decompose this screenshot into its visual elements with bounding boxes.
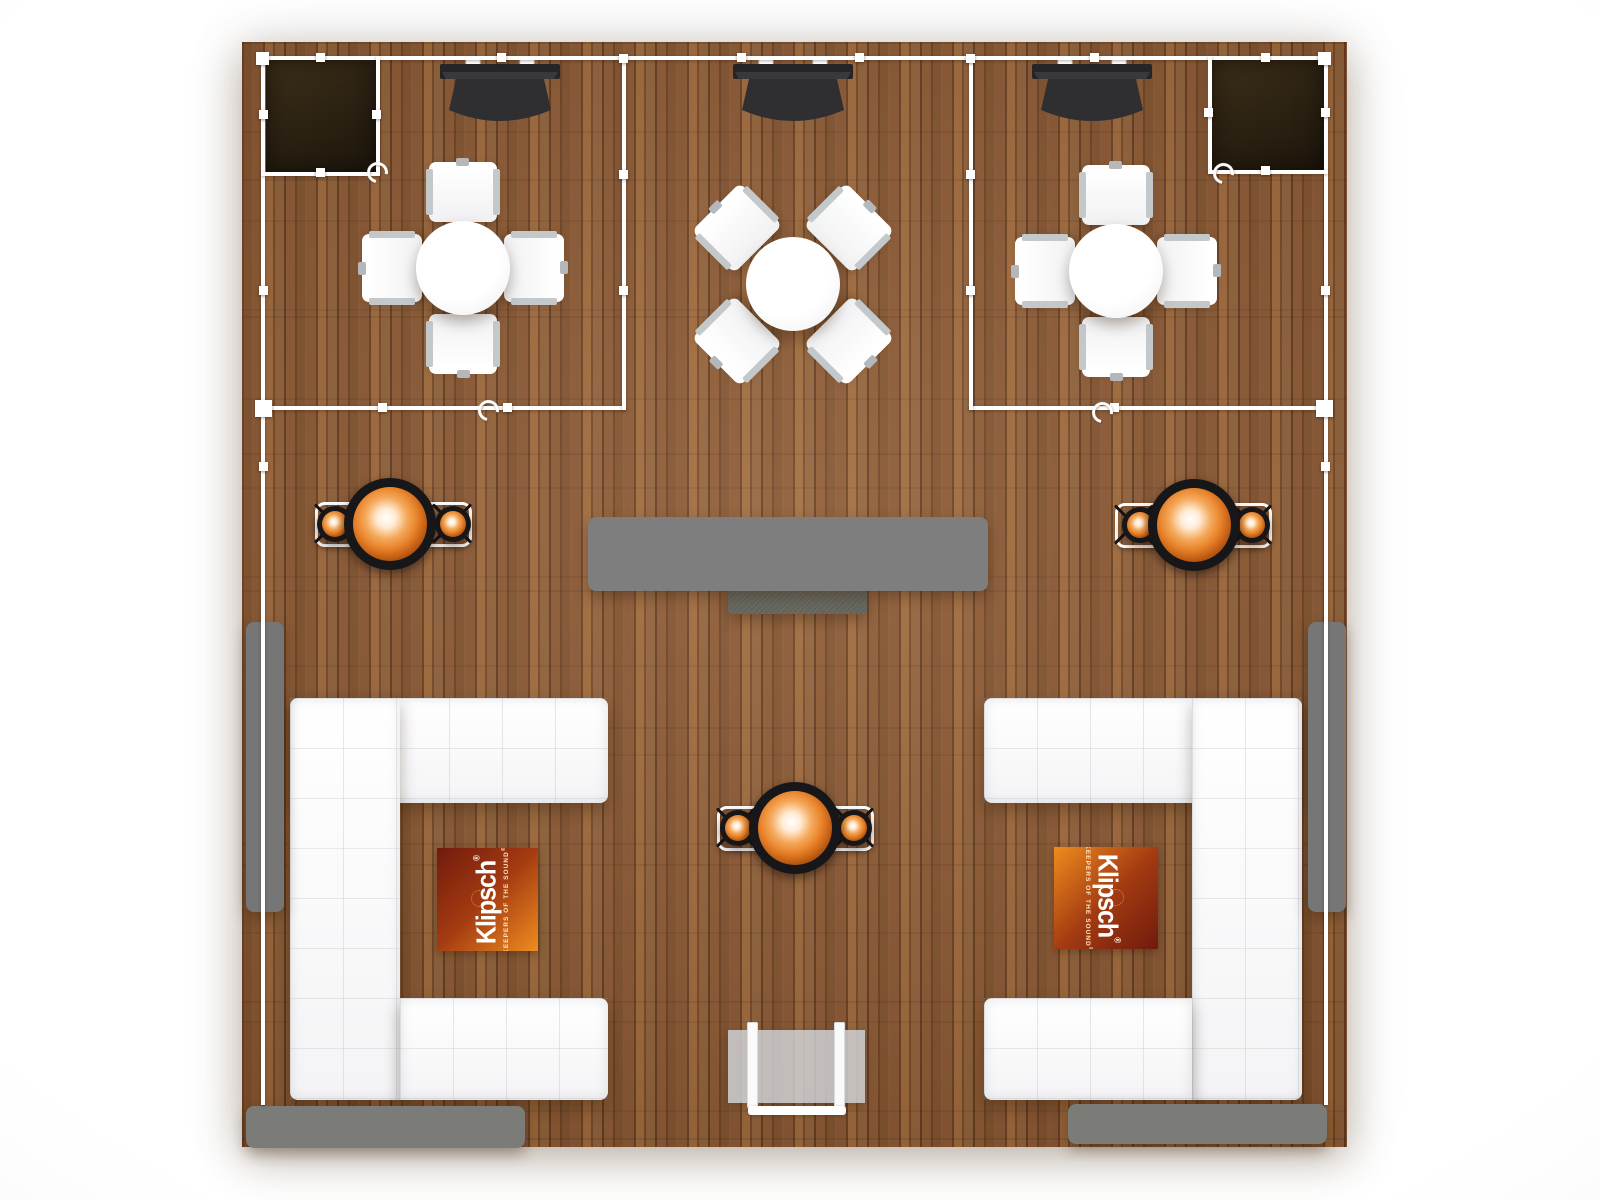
sofa-right-bottom-arm[interactable] <box>984 998 1192 1100</box>
selection-handle[interactable] <box>259 286 268 295</box>
selection-handle[interactable] <box>1321 108 1330 117</box>
room-planner-canvas: Klipsch® KEEPERS OF THE SOUND® Klipsch® … <box>0 0 1600 1200</box>
small-speaker-icon <box>836 810 872 846</box>
selection-handle[interactable] <box>966 170 975 179</box>
stand-rail <box>834 1022 845 1108</box>
speaker-set-right[interactable] <box>1115 479 1272 571</box>
reception-desk[interactable] <box>588 517 988 591</box>
storage-closet-right[interactable] <box>1211 59 1324 170</box>
selection-handle[interactable] <box>316 168 325 177</box>
woofer-icon <box>344 478 436 570</box>
chair[interactable] <box>362 234 422 302</box>
selection-handle[interactable] <box>378 403 387 412</box>
sofa-left-bottom-arm[interactable] <box>400 998 608 1100</box>
selection-handle[interactable] <box>1090 53 1099 62</box>
selection-handle[interactable] <box>256 52 269 65</box>
selection-handle[interactable] <box>372 110 381 119</box>
meeting-zone-left-line-right[interactable] <box>622 56 626 410</box>
selection-handle[interactable] <box>497 53 506 62</box>
selection-handle[interactable] <box>619 54 628 63</box>
storage-closet-left[interactable] <box>266 58 376 172</box>
stand-front-bar <box>748 1106 846 1115</box>
speaker-set-center[interactable] <box>717 782 874 874</box>
selection-handle[interactable] <box>966 286 975 295</box>
rug-logo: Klipsch® KEEPERS OF THE SOUND® <box>1084 847 1128 949</box>
round-table[interactable] <box>416 221 510 315</box>
chair[interactable] <box>1015 237 1075 305</box>
selection-handle[interactable] <box>1316 400 1333 417</box>
selection-handle[interactable] <box>1261 166 1270 175</box>
selection-handle[interactable] <box>619 170 628 179</box>
selection-handle[interactable] <box>619 286 628 295</box>
sofa-right-spine[interactable] <box>1192 698 1302 1100</box>
side-bench-left[interactable] <box>246 622 284 912</box>
sofa-left-spine[interactable] <box>290 698 400 1100</box>
chair[interactable] <box>1082 317 1150 377</box>
selection-handle[interactable] <box>259 462 268 471</box>
floor-mat-right[interactable] <box>1068 1104 1327 1144</box>
media-stand[interactable] <box>726 1020 867 1120</box>
selection-handle[interactable] <box>255 400 272 417</box>
woofer-icon <box>1148 479 1240 571</box>
chair[interactable] <box>1082 165 1150 225</box>
klipsch-rug-right[interactable]: Klipsch® KEEPERS OF THE SOUND® <box>1054 847 1158 949</box>
selection-handle[interactable] <box>1261 53 1270 62</box>
meeting-zone-right-line-bottom[interactable] <box>969 406 1328 410</box>
round-table[interactable] <box>746 237 840 331</box>
booth-boundary-line-right[interactable] <box>1324 56 1328 1105</box>
klipschorn-speaker-icon[interactable] <box>438 54 562 130</box>
meeting-zone-left-line-bottom[interactable] <box>261 406 626 410</box>
selection-handle[interactable] <box>259 110 268 119</box>
selection-handle[interactable] <box>966 54 975 63</box>
selection-handle[interactable] <box>503 403 512 412</box>
small-speaker-icon <box>435 506 471 542</box>
selection-handle[interactable] <box>316 53 325 62</box>
chair[interactable] <box>1157 237 1217 305</box>
klipsch-rug-left[interactable]: Klipsch® KEEPERS OF THE SOUND® <box>437 848 538 951</box>
selection-handle[interactable] <box>1204 108 1213 117</box>
stand-rail <box>747 1022 758 1108</box>
booth-boundary-line-left[interactable] <box>261 56 265 1105</box>
speaker-set-left[interactable] <box>315 478 472 570</box>
klipschorn-speaker-icon[interactable] <box>731 54 855 130</box>
selection-handle[interactable] <box>737 53 746 62</box>
selection-handle[interactable] <box>1321 286 1330 295</box>
selection-handle[interactable] <box>1321 462 1330 471</box>
rug-logo: Klipsch® KEEPERS OF THE SOUND® <box>465 848 509 951</box>
klipschorn-speaker-icon[interactable] <box>1030 54 1154 130</box>
low-bench[interactable] <box>728 589 867 614</box>
meeting-zone-right-line-left[interactable] <box>969 56 973 410</box>
round-table[interactable] <box>1069 224 1163 318</box>
woofer-icon <box>749 782 841 874</box>
floor-mat-left[interactable] <box>246 1106 525 1148</box>
chair[interactable] <box>429 162 497 222</box>
chair[interactable] <box>504 234 564 302</box>
booth-boundary-line-top[interactable] <box>261 56 1328 60</box>
chair[interactable] <box>429 314 497 374</box>
selection-handle[interactable] <box>855 53 864 62</box>
selection-handle[interactable] <box>1318 52 1331 65</box>
